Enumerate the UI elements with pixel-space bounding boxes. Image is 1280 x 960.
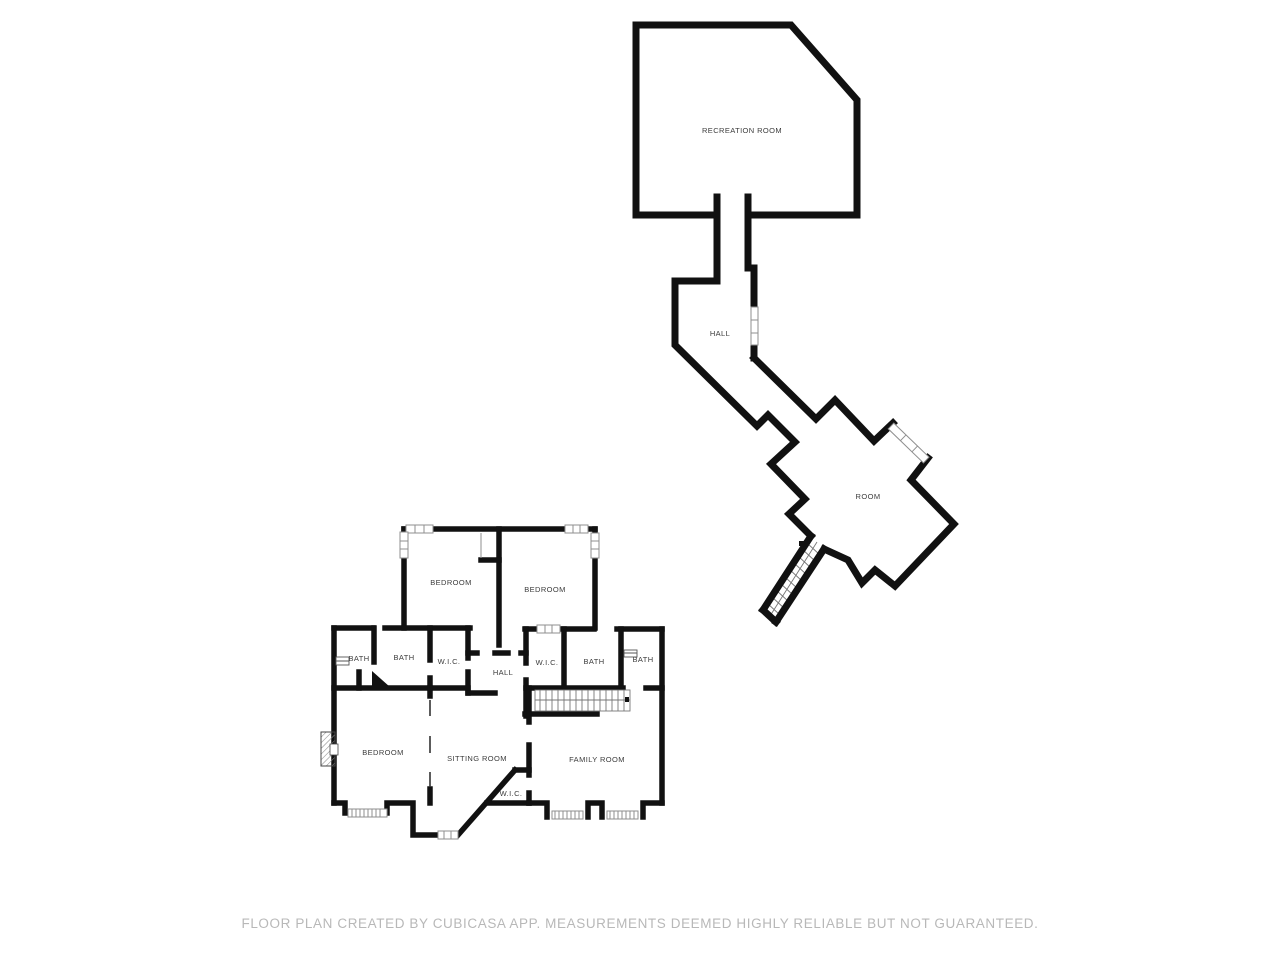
room-window <box>888 423 929 463</box>
room-label-wic-2: W.I.C. <box>536 658 559 667</box>
floor-plan-svg: RECREATION ROOM HALL ROOM BEDROOM BEDROO… <box>0 0 1280 960</box>
room-label-bath-1: BATH <box>348 654 369 663</box>
room-label-bath-4: BATH <box>632 655 653 664</box>
floor-plan-page: RECREATION ROOM HALL ROOM BEDROOM BEDROO… <box>0 0 1280 960</box>
lower-staircase <box>535 690 630 711</box>
bath-fixture-left <box>336 657 349 665</box>
room-label-wic-1: W.I.C. <box>438 657 461 666</box>
room-label-bedroom-2: BEDROOM <box>524 585 566 594</box>
room-label-bath-2: BATH <box>393 653 414 662</box>
fireplace <box>321 732 338 766</box>
stair-direction-dot <box>625 697 629 702</box>
room-label-lower-hall: HALL <box>493 668 513 677</box>
footer-disclaimer: FLOOR PLAN CREATED BY CUBICASA APP. MEAS… <box>0 916 1280 931</box>
hall-window <box>751 307 758 345</box>
room-label-upper-hall: HALL <box>710 329 730 338</box>
room-label-wic-3: W.I.C. <box>500 789 523 798</box>
room-label-bedroom-3: BEDROOM <box>362 748 404 757</box>
room-label-bedroom-1: BEDROOM <box>430 578 472 587</box>
lower-floor-walls <box>334 529 662 835</box>
stair-direction-dot <box>799 541 804 546</box>
room-label-room: ROOM <box>856 492 881 501</box>
upper-staircase <box>763 536 824 622</box>
room-label-family-room: FAMILY ROOM <box>569 755 625 764</box>
upper-floor-walls <box>636 25 954 586</box>
bath-corner-wall <box>372 671 390 687</box>
room-label-sitting-room: SITTING ROOM <box>447 754 507 763</box>
room-label-recreation-room: RECREATION ROOM <box>702 126 782 135</box>
room-label-bath-3: BATH <box>583 657 604 666</box>
